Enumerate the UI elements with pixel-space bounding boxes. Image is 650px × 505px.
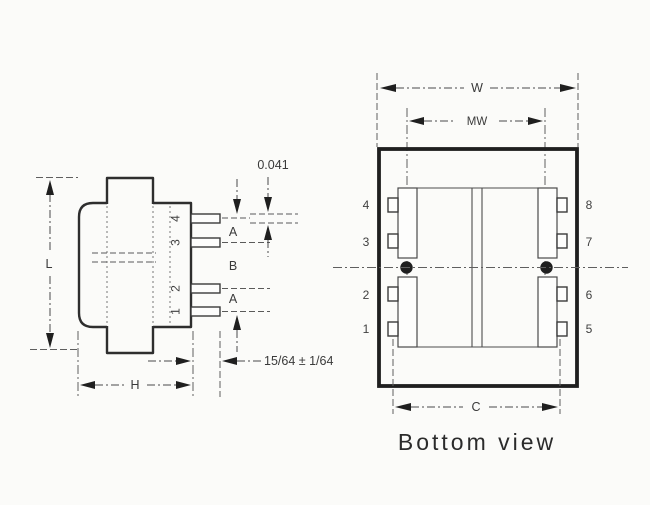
dimension-L: L (30, 178, 78, 350)
dimension-pin-spacing: A B A (222, 179, 270, 352)
pin-label-8: 8 (586, 198, 593, 212)
right-rail-upper (538, 188, 557, 258)
arrow-left-icon (222, 357, 237, 365)
arrow-right-icon (176, 381, 191, 389)
pin-label-3: 3 (169, 239, 183, 246)
dimension-pin-thickness: 0.041 (250, 158, 298, 257)
arrow-down-icon (46, 333, 54, 348)
arrow-up-icon (264, 225, 272, 240)
left-rail-upper (398, 188, 417, 258)
transformer-mechanical-drawing: L 4 3 2 1 (0, 0, 650, 505)
dim-label-pin-length: 15/64 ± 1/64 (264, 354, 333, 368)
pin-3 (388, 234, 398, 248)
core-top (107, 178, 153, 204)
arrow-right-icon (176, 357, 191, 365)
arrow-right-icon (542, 403, 558, 411)
dim-label-length: L (46, 257, 53, 271)
pin-4 (388, 198, 398, 212)
pin-5 (557, 322, 567, 336)
arrow-right-icon (560, 84, 576, 92)
pin-label-5: 5 (586, 322, 593, 336)
pin-4 (191, 214, 220, 223)
pin-label-1: 1 (363, 322, 370, 336)
pin-7 (557, 234, 567, 248)
side-view-pins: 4 3 2 1 (169, 214, 221, 316)
arrow-up-icon (46, 180, 54, 195)
pin-label-2: 2 (169, 285, 183, 292)
pin-2 (388, 287, 398, 301)
dim-label-a-bottom: A (229, 292, 238, 306)
arrow-down-icon (264, 197, 272, 212)
pin-1 (388, 322, 398, 336)
dimension-H: H (78, 331, 193, 398)
dimension-pin-length: 15/64 ± 1/64 (148, 331, 333, 397)
dimension-C: C (393, 339, 560, 414)
core-bottom (107, 326, 153, 353)
arrow-down-icon (233, 199, 241, 214)
side-view: L 4 3 2 1 (30, 158, 333, 398)
pin-label-7: 7 (586, 235, 593, 249)
arrow-left-icon (409, 117, 424, 125)
pin-label-4: 4 (169, 215, 183, 222)
pin-label-4: 4 (363, 198, 370, 212)
pin-8 (557, 198, 567, 212)
right-rail-lower (538, 277, 557, 347)
pin-label-3: 3 (363, 235, 370, 249)
pin-2 (191, 284, 220, 293)
caption-bottom-view: Bottom view (398, 429, 556, 455)
pin-1 (191, 307, 220, 316)
dim-label-mounting-width: MW (467, 116, 488, 128)
body-left-rounded (79, 203, 107, 327)
bottom-view: W MW (333, 73, 628, 455)
arrow-left-icon (80, 381, 95, 389)
drawing-canvas: L 4 3 2 1 (0, 0, 650, 505)
pin-label-1: 1 (169, 308, 183, 315)
dim-label-height: H (130, 378, 139, 392)
dim-label-width: W (471, 81, 483, 95)
pin-6 (557, 287, 567, 301)
dim-label-b: B (229, 259, 237, 273)
arrow-left-icon (395, 403, 411, 411)
arrow-up-icon (233, 315, 241, 330)
dim-label-pin-thickness: 0.041 (257, 158, 288, 172)
dim-label-a-top: A (229, 225, 238, 239)
pin-3 (191, 238, 220, 247)
arrow-right-icon (528, 117, 543, 125)
dim-label-pin-row-span: C (471, 400, 480, 414)
core-outline (107, 178, 153, 353)
left-rail-lower (398, 277, 417, 347)
pin-label-2: 2 (363, 288, 370, 302)
arrow-left-icon (380, 84, 396, 92)
pin-label-6: 6 (586, 288, 593, 302)
dimension-MW: MW (407, 108, 545, 290)
